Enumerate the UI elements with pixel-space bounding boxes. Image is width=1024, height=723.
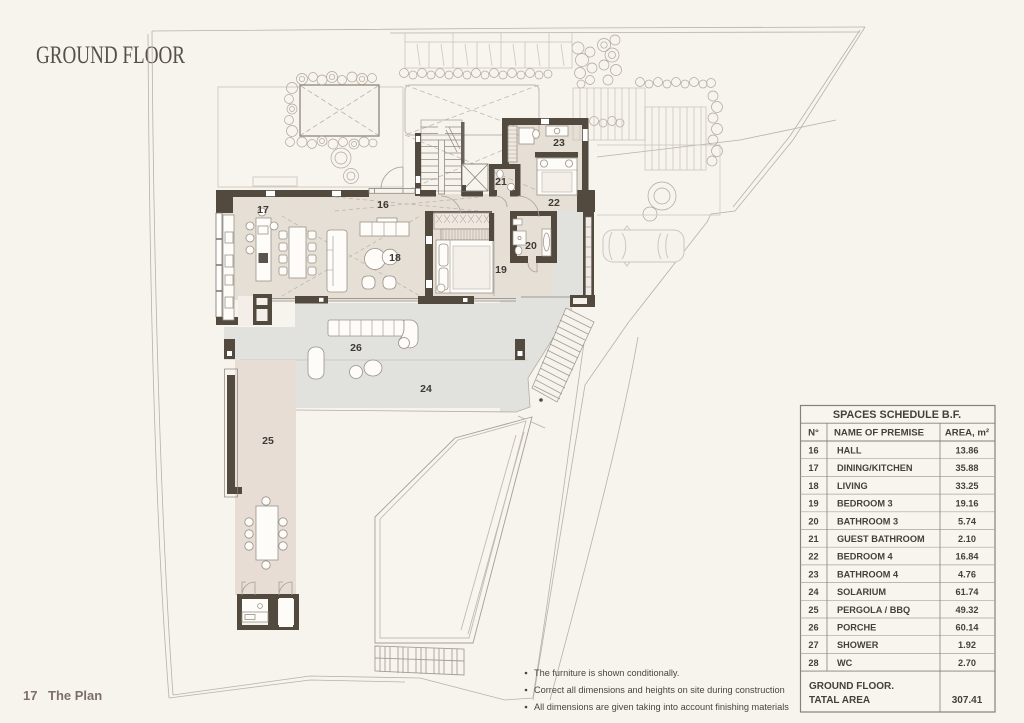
svg-text:20: 20 [525,240,537,252]
svg-text:24: 24 [420,383,432,395]
svg-text:28: 28 [808,658,818,668]
svg-text:22: 22 [808,552,818,562]
svg-text:WC: WC [837,658,853,668]
svg-text:LIVING: LIVING [837,481,868,491]
svg-text:All dimensions are given takin: All dimensions are given taking into acc… [534,702,789,712]
svg-text:BATHROOM 4: BATHROOM 4 [837,569,899,579]
svg-text:22: 22 [548,197,560,209]
svg-text:25: 25 [808,605,818,615]
svg-text:PORCHE: PORCHE [837,623,876,633]
svg-text:BEDROOM 3: BEDROOM 3 [837,499,893,509]
svg-text:5.74: 5.74 [958,516,977,526]
svg-text:BATHROOM 3: BATHROOM 3 [837,516,898,526]
svg-text:23: 23 [808,569,818,579]
svg-text:DINING/KITCHEN: DINING/KITCHEN [837,463,913,473]
svg-text:25: 25 [262,435,274,447]
svg-text:20: 20 [808,516,818,526]
svg-text:17: 17 [808,463,818,473]
svg-text:16: 16 [377,199,389,211]
svg-text:1.92: 1.92 [958,640,976,650]
svg-text:GROUND FLOOR: GROUND FLOOR [36,42,185,69]
svg-text:35.88: 35.88 [956,463,979,473]
svg-text:27: 27 [808,640,818,650]
svg-text:19: 19 [808,499,818,509]
svg-text:17: 17 [257,204,269,216]
svg-text:SOLARIUM: SOLARIUM [837,587,886,597]
svg-text:13.86: 13.86 [956,446,979,456]
svg-text:18: 18 [808,481,818,491]
svg-text:2.10: 2.10 [958,534,976,544]
svg-text:49.32: 49.32 [956,605,979,615]
svg-text:26: 26 [808,623,818,633]
svg-text:17: 17 [23,688,37,703]
svg-text:GUEST BATHROOM: GUEST BATHROOM [837,534,925,544]
svg-text:HALL: HALL [837,446,862,456]
svg-text:21: 21 [808,534,818,544]
svg-text:60.14: 60.14 [956,623,980,633]
svg-text:Correct all dimensions and hei: Correct all dimensions and heights on si… [534,685,785,695]
svg-text:19: 19 [495,264,507,276]
svg-text:N°: N° [808,428,819,439]
svg-text:21: 21 [495,176,507,188]
svg-text:33.25: 33.25 [956,481,979,491]
svg-text:The Plan: The Plan [48,688,102,703]
svg-text:GROUND FLOOR.: GROUND FLOOR. [809,681,894,692]
svg-text:NAME OF PREMISE: NAME OF PREMISE [834,428,925,439]
svg-text:23: 23 [553,137,565,149]
svg-text:16.84: 16.84 [956,552,980,562]
svg-text:2.70: 2.70 [958,658,976,668]
svg-text:19.16: 19.16 [956,499,979,509]
svg-text:SPACES SCHEDULE B.F.: SPACES SCHEDULE B.F. [833,409,961,421]
svg-text:PERGOLA / BBQ: PERGOLA / BBQ [837,605,910,615]
svg-text:SHOWER: SHOWER [837,640,879,650]
svg-text:18: 18 [389,252,401,264]
svg-text:4.76: 4.76 [958,569,976,579]
svg-text:The furniture is shown conditi: The furniture is shown conditionally. [534,668,679,678]
svg-text:307.41: 307.41 [952,695,983,706]
svg-text:TATAL AREA: TATAL AREA [809,695,870,706]
svg-text:AREA, m²: AREA, m² [945,428,989,439]
svg-text:61.74: 61.74 [956,587,980,597]
svg-text:BEDROOM 4: BEDROOM 4 [837,552,894,562]
svg-text:16: 16 [808,446,818,456]
svg-text:24: 24 [808,587,819,597]
svg-text:26: 26 [350,342,362,354]
